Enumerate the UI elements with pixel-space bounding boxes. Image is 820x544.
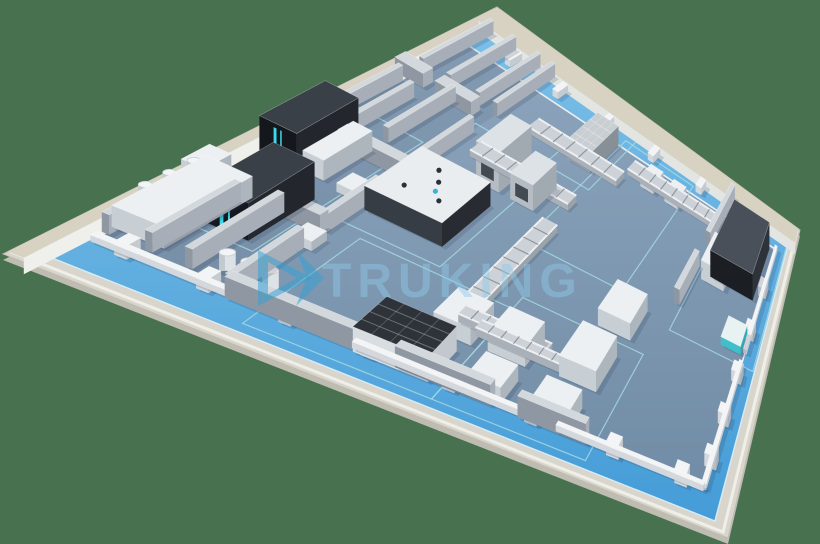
robot-arm — [436, 180, 441, 185]
viewport: TRUKING — [0, 0, 820, 544]
watermark-text: TRUKING — [322, 255, 583, 308]
robot-arm — [436, 168, 441, 173]
robot-arm — [402, 182, 407, 187]
factory-scene: TRUKING — [0, 0, 820, 544]
robot-arm — [433, 189, 438, 194]
robot-arm — [436, 198, 441, 203]
